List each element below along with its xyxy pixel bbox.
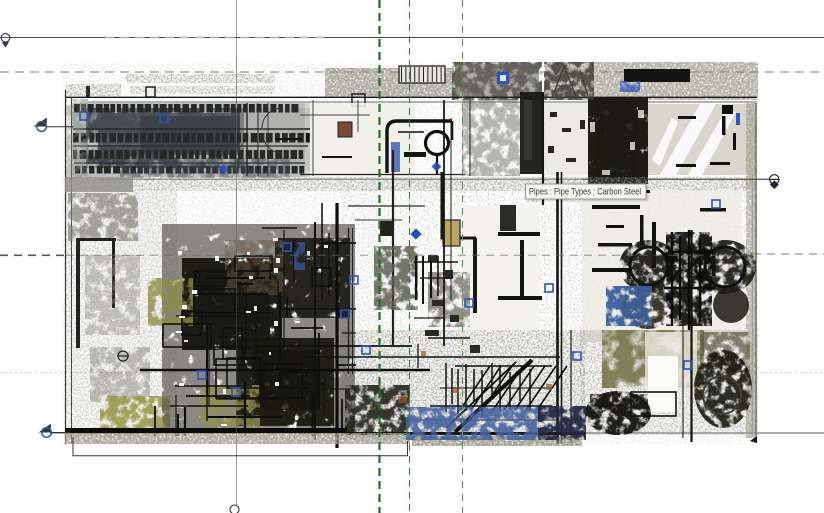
- svg-text:Pipes : Pipe Types : Carbon St: Pipes : Pipe Types : Carbon Steel: [529, 187, 641, 198]
